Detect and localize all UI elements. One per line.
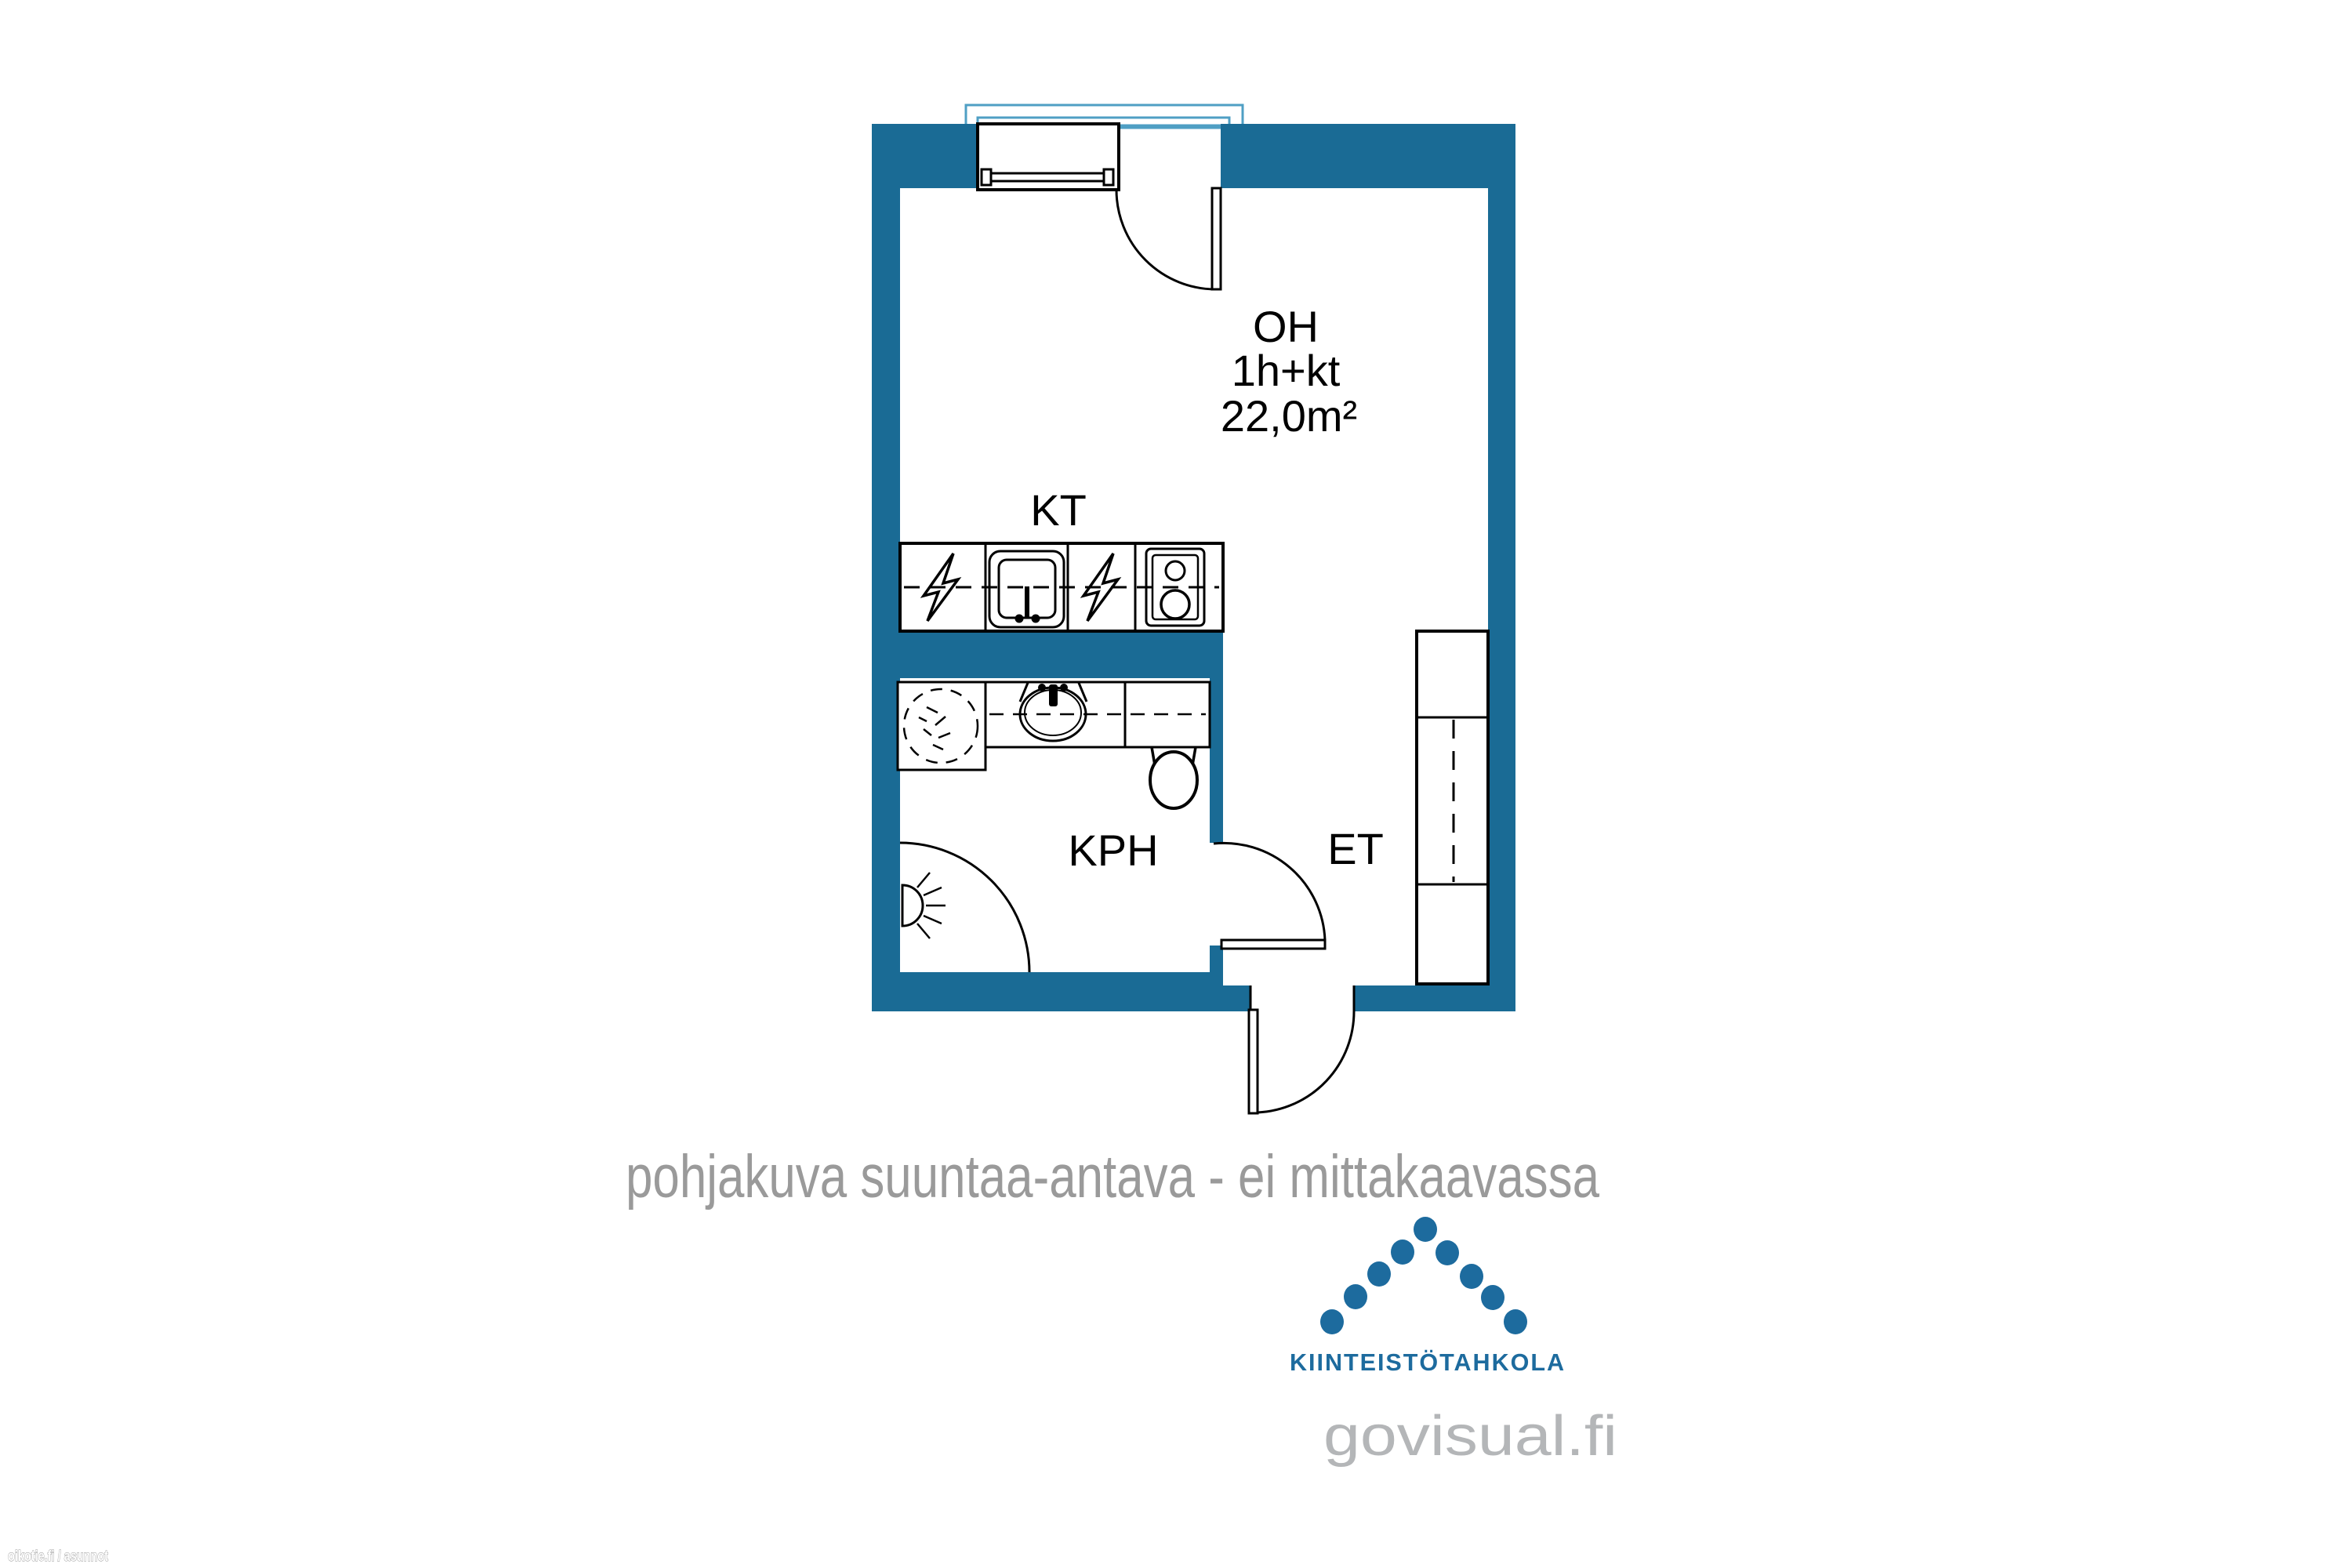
room-type-living: 1h+kt (1232, 346, 1341, 395)
room-label-entry: ET (1327, 824, 1384, 873)
washing-machine-icon (898, 682, 985, 770)
kitchen-counter (900, 543, 1223, 631)
bathroom-fixtures (898, 682, 1210, 972)
entrance-door (1249, 985, 1354, 1113)
bathroom-door (1214, 843, 1325, 949)
brand-logo-icon (1320, 1217, 1527, 1334)
floor-plan-page: OH 1h+kt 22,0m² KT KPH ET pohjakuva suun… (0, 0, 2352, 1568)
brand-site: govisual.fi (1323, 1405, 1617, 1468)
room-label-kitchen: KT (1030, 485, 1087, 535)
room-area-living: 22,0m² (1221, 391, 1357, 441)
room-label-living: OH (1253, 302, 1319, 351)
brand-name: KIINTEISTÖTAHKOLA (1290, 1348, 1566, 1376)
balcony-door (1116, 188, 1221, 289)
wardrobe (1417, 631, 1488, 984)
disclaimer-text: pohjakuva suuntaa-antava - ei mittakaava… (626, 1143, 1599, 1210)
watermark-text: oikotie.fi / asunnot (8, 1548, 109, 1565)
floor-plan-svg: OH 1h+kt 22,0m² KT KPH ET pohjakuva suun… (0, 0, 2352, 1568)
balcony-window (978, 124, 1119, 190)
shower-icon (900, 843, 1029, 972)
room-label-bathroom: KPH (1068, 826, 1158, 875)
toilet-icon (1150, 747, 1197, 808)
